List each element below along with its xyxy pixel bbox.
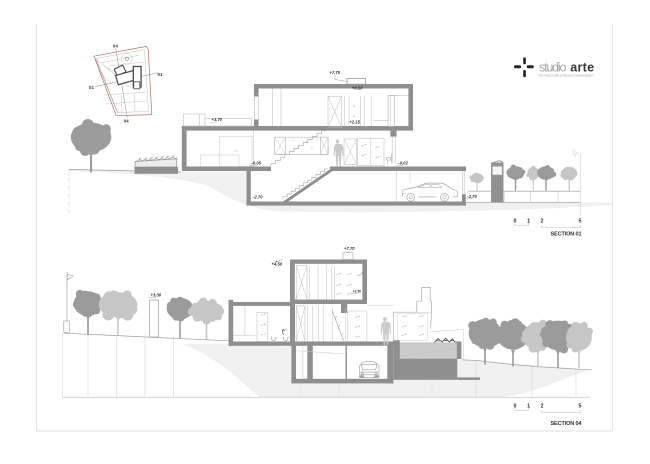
svg-text:5: 5 [579,218,582,224]
svg-text:5: 5 [579,403,582,409]
svg-text:-0.02: -0.02 [398,160,408,165]
svg-text:studio: studio [539,60,567,74]
svg-text:+2.50: +2.50 [353,290,361,294]
svg-text:+7.70: +7.70 [330,70,341,75]
svg-text:arte: arte [570,60,594,74]
svg-text:+6.50: +6.50 [352,85,363,90]
svg-text:SECTION 04: SECTION 04 [551,421,583,427]
svg-text:0: 0 [514,218,517,224]
svg-text:+7.70: +7.70 [344,246,355,251]
svg-text:04: 04 [113,44,119,49]
svg-text:04: 04 [124,119,130,124]
svg-text:2: 2 [541,403,544,409]
svg-text:+4.50: +4.50 [272,262,283,267]
svg-text:+3.70: +3.70 [212,117,223,122]
svg-text:01: 01 [158,72,164,77]
svg-text:SECTION 01: SECTION 01 [551,231,582,237]
svg-text:01: 01 [89,85,95,90]
svg-text:+2.15: +2.15 [349,119,360,124]
svg-text:+3.30: +3.30 [151,293,162,298]
svg-text:-2.70: -2.70 [253,194,263,199]
svg-text:2: 2 [541,218,544,224]
svg-text:0: 0 [514,403,517,409]
svg-text:-0.05: -0.05 [252,160,262,165]
svg-text:-2.70: -2.70 [467,194,477,199]
svg-text:ARCHITECTURE & PROJECT MANAGEM: ARCHITECTURE & PROJECT MANAGEMENT [539,74,595,78]
